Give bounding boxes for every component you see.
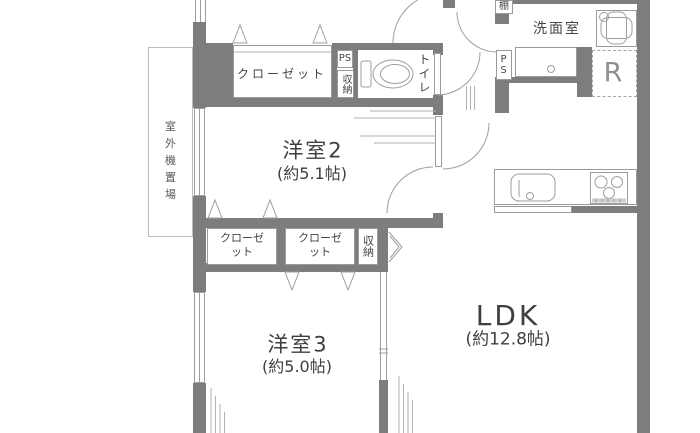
label-yoshitsu3-name: 洋室3 — [267, 335, 328, 356]
label-toilet: トイレ — [418, 53, 430, 95]
label-ps-upper: PS — [339, 54, 351, 64]
symbol-layer — [0, 0, 700, 433]
entrance-door-arc — [393, 0, 443, 43]
window-yoshitsu2 — [195, 108, 205, 196]
label-shuno-upper: 収納 — [340, 74, 350, 94]
label-ldk-name: LDK — [476, 302, 541, 330]
bifold-door-icon — [389, 232, 402, 262]
label-closet-left: クローゼット — [219, 232, 265, 261]
window-yoshitsu3 — [195, 292, 205, 383]
toilet-icon — [361, 60, 413, 88]
bedroom2-door-arc — [387, 167, 433, 213]
washbasin-icon — [548, 66, 555, 73]
label-refrigerator-space: R — [604, 60, 623, 87]
floor-plan: クローゼット PS 収納 トイレ 棚 洗面室 PS R 室外機置場 洋室2 (約… — [0, 0, 700, 433]
window-top — [196, 0, 206, 22]
washroom-door-arc — [457, 12, 497, 52]
hall-slide-lines — [467, 86, 475, 110]
label-senmenshitsu: 洗面室 — [533, 22, 581, 36]
label-ps-hall: PS — [498, 54, 508, 76]
gas-stove-icon — [591, 173, 628, 204]
label-yoshitsu2-name: 洋室2 — [282, 141, 343, 162]
toilet-door-arc — [437, 52, 480, 95]
washing-machine-icon — [600, 12, 633, 44]
label-ldk-size: (約12.8帖) — [465, 332, 550, 349]
sliding-partition — [379, 272, 388, 380]
kitchen-sink-icon — [511, 174, 555, 201]
label-closet-yoshitsu2: クローゼット — [237, 68, 327, 80]
label-shuno-lower: 収納 — [363, 235, 374, 257]
label-yoshitsu3-size: (約5.0帖) — [262, 359, 332, 375]
ldk-door-arc — [443, 123, 489, 169]
label-shelf: 棚 — [499, 2, 509, 12]
sliding-door-lines — [354, 111, 436, 143]
label-outdoor-unit: 室外機置場 — [165, 121, 176, 206]
balcony-sash-lines — [211, 376, 413, 433]
label-closet-right: クローゼット — [297, 232, 343, 261]
label-yoshitsu2-size: (約5.1帖) — [277, 166, 347, 182]
